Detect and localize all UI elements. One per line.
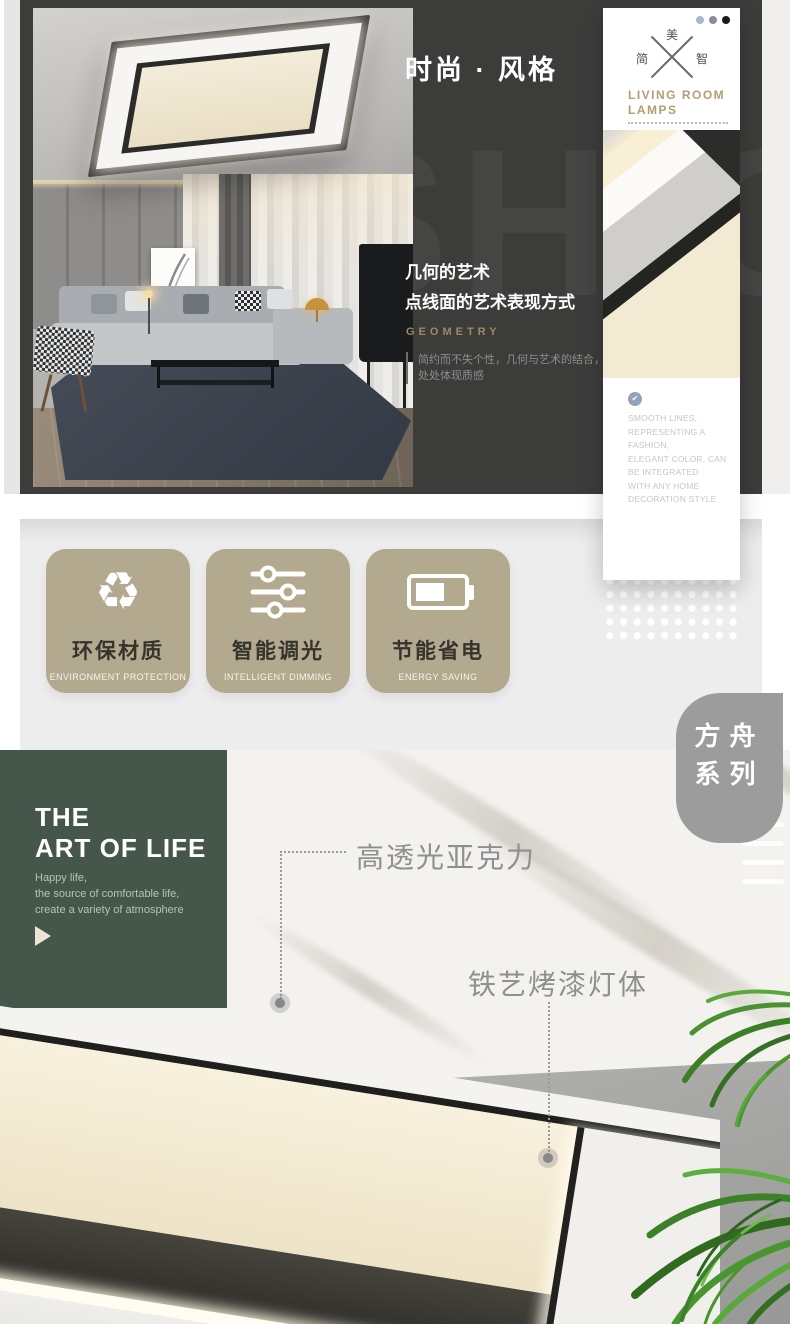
feature-card-dimming: 智能调光 INTELLIGENT DIMMING	[206, 549, 350, 693]
battery-shape	[407, 574, 469, 610]
hero-title: 时尚 · 风格	[405, 48, 558, 87]
floor-lamp-bulb	[145, 290, 153, 298]
floor-lamp-stem	[148, 298, 150, 334]
hero-subtitle-line2: 点线面的艺术表现方式	[405, 288, 575, 318]
callout-line-vertical	[280, 851, 282, 999]
battery-icon	[407, 549, 469, 635]
logo-char-top: 美	[666, 26, 678, 43]
table-lamp-stem	[316, 310, 318, 322]
recycle-glyph: ♻	[95, 566, 142, 618]
brand-logo: 美 简 智	[645, 30, 699, 84]
subtext-line: Happy life,	[35, 870, 184, 886]
living-room-photo	[33, 8, 413, 487]
hero-subtitle-line1: 几何的艺术	[405, 258, 575, 288]
sliders-svg	[247, 563, 309, 621]
card-dots	[696, 16, 730, 24]
brand-line1: LIVING ROOM	[628, 88, 725, 103]
check-badge-icon: ✔	[628, 392, 642, 406]
coffee-table-top	[151, 360, 279, 367]
feature-card-environment: ♻ 环保材质 ENVIRONMENT PROTECTION	[46, 549, 190, 693]
left-margin-strip	[4, 0, 20, 494]
brand-text: LIVING ROOM LAMPS	[628, 88, 725, 118]
cove-light	[33, 180, 203, 189]
hero-desc-line1: 简约而不失个性，几何与艺术的结合，	[418, 352, 605, 368]
brand-line2: LAMPS	[628, 103, 725, 118]
feature-label-en: ENVIRONMENT PROTECTION	[50, 672, 187, 682]
badge-line1: 方舟	[676, 717, 783, 755]
note-line: ELEGANT COLOR, CAN BE INTEGRATED	[628, 453, 740, 480]
feature-label-zh: 节能省电	[392, 635, 484, 665]
armchair	[33, 325, 95, 377]
pillow	[267, 289, 293, 309]
feature-label-en: INTELLIGENT DIMMING	[224, 672, 332, 682]
callout-line-vertical	[548, 1002, 550, 1152]
right-margin-strip	[762, 0, 790, 494]
feature-label-en: ENERGY SAVING	[399, 672, 478, 682]
geometry-caption: GEOMETRY	[406, 326, 501, 338]
badge-line2: 系列	[676, 755, 783, 793]
dotted-divider	[628, 122, 728, 124]
product-detail-page: FASHION	[0, 0, 790, 1324]
subtext-line: the source of comfortable life,	[35, 886, 184, 902]
green-panel: THE ART OF LIFE Happy life, the source o…	[0, 750, 227, 1008]
pillow	[183, 294, 209, 314]
feature-label-zh: 环保材质	[72, 635, 164, 665]
coffee-table-leg	[271, 366, 274, 388]
callout-acrylic: 高透光亚克力	[356, 836, 536, 876]
lamp-closeup-bands	[603, 130, 740, 378]
sliders-icon	[247, 549, 309, 635]
hero-desc-line2: 处处体现质感	[418, 368, 605, 384]
recycle-icon: ♻	[95, 549, 142, 635]
card-note: SMOOTH LINES, REPRESENTING A FASHION, EL…	[628, 412, 740, 507]
feature-label-zh: 智能调光	[232, 635, 324, 665]
brand-card: 美 简 智 LIVING ROOM LAMPS ✔ SMOOTH LINES	[603, 8, 740, 580]
coffee-table-shelf	[159, 380, 271, 385]
dot-black	[722, 16, 730, 24]
callout-dot	[270, 993, 290, 1013]
logo-char-left: 简	[636, 50, 648, 67]
callout-line-horizontal	[280, 851, 346, 853]
note-line: WITH ANY HOME DECORATION STYLE	[628, 480, 740, 507]
lamp-closeup-photo	[603, 130, 740, 378]
note-line: REPRESENTING A FASHION,	[628, 426, 740, 453]
lifestyle-section: THE ART OF LIFE Happy life, the source o…	[0, 750, 790, 1324]
hero-subtitle: 几何的艺术 点线面的艺术表现方式	[405, 258, 575, 318]
plant	[590, 975, 790, 1324]
lifestyle-subtext: Happy life, the source of comfortable li…	[35, 870, 184, 918]
deco-line	[742, 860, 784, 865]
play-triangle-icon	[35, 926, 51, 946]
logo-char-right: 智	[696, 50, 708, 67]
subtext-line: create a variety of atmosphere	[35, 902, 184, 918]
pillow	[235, 291, 261, 311]
dot-blue	[696, 16, 704, 24]
armchair-leg	[40, 374, 52, 412]
battery-fill	[416, 583, 444, 601]
sofa-chaise	[273, 308, 353, 364]
pillow	[91, 294, 117, 314]
heading-line1: THE	[35, 802, 206, 833]
callout-dot	[538, 1148, 558, 1168]
dot-purple	[709, 16, 717, 24]
dot-pattern	[603, 574, 740, 640]
hero-description: 简约而不失个性，几何与艺术的结合， 处处体现质感	[406, 352, 605, 384]
coffee-table-leg	[157, 366, 160, 388]
note-line: SMOOTH LINES,	[628, 412, 740, 426]
deco-line	[742, 879, 784, 884]
lifestyle-heading: THE ART OF LIFE	[35, 802, 206, 864]
feature-card-energy: 节能省电 ENERGY SAVING	[366, 549, 510, 693]
series-badge: 方舟 系列	[676, 693, 783, 843]
heading-line2: ART OF LIFE	[35, 833, 206, 864]
